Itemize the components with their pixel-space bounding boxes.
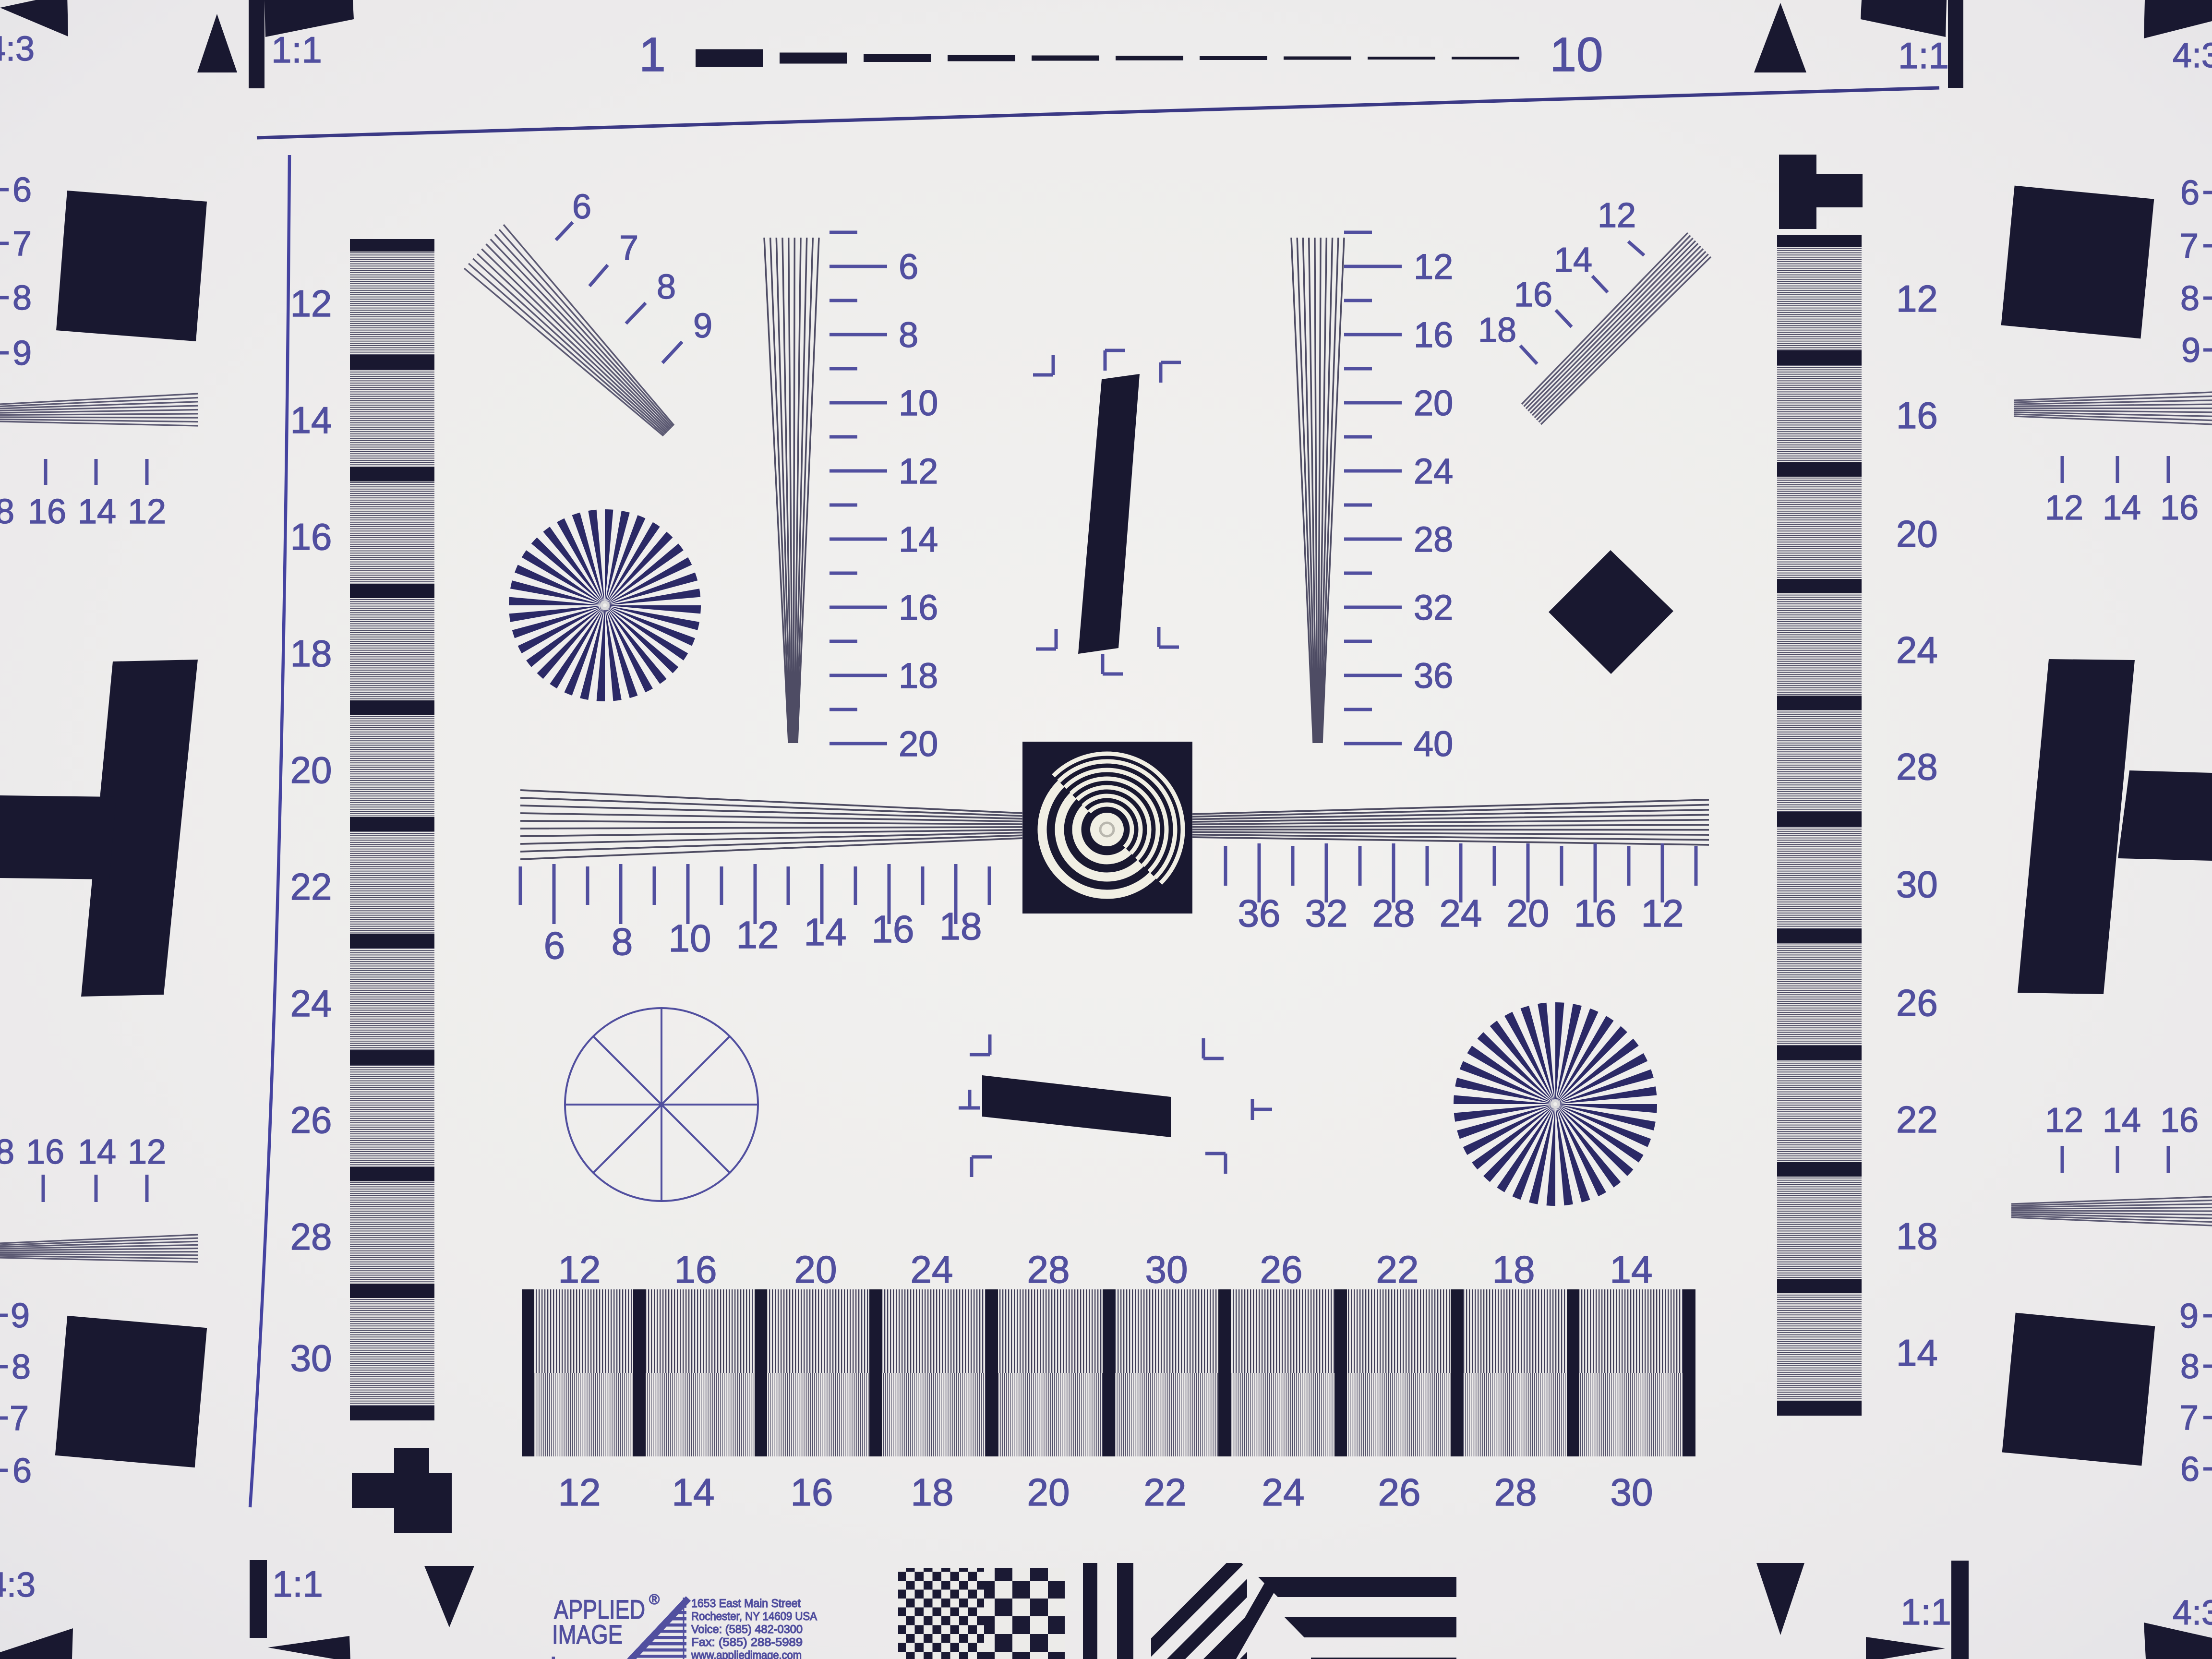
svg-text:12: 12 [290,282,332,325]
svg-text:22: 22 [1376,1248,1419,1291]
svg-text:1:1: 1:1 [271,30,322,71]
svg-text:12: 12 [1598,196,1636,235]
svg-text:14: 14 [78,1133,116,1171]
svg-text:8: 8 [612,920,633,963]
svg-text:10: 10 [669,917,711,960]
svg-text:7: 7 [619,229,638,267]
svg-text:®: ® [649,1592,660,1608]
svg-text:18: 18 [1478,311,1516,349]
svg-text:4:3: 4:3 [2173,36,2212,75]
svg-text:Inc: Inc [550,1651,586,1659]
svg-text:24: 24 [911,1248,953,1291]
svg-text:18: 18 [899,656,938,696]
svg-text:6: 6 [2180,174,2200,212]
svg-text:7: 7 [2179,1399,2199,1437]
svg-text:24: 24 [1440,892,1482,935]
svg-text:30: 30 [1896,863,1938,905]
svg-text:12: 12 [558,1248,601,1291]
svg-text:Voice: (585) 482-0300: Voice: (585) 482-0300 [691,1623,803,1636]
svg-text:8: 8 [899,315,918,355]
svg-text:36: 36 [1238,892,1281,935]
svg-text:www.appliedimage.com: www.appliedimage.com [691,1649,802,1659]
svg-text:40: 40 [1414,724,1453,764]
svg-text:26: 26 [1896,982,1938,1024]
svg-text:28: 28 [290,1215,332,1258]
svg-text:26: 26 [1378,1471,1421,1514]
svg-text:28: 28 [1494,1471,1537,1514]
svg-text:28: 28 [1027,1248,1070,1291]
svg-text:8: 8 [2180,279,2200,318]
svg-text:6: 6 [572,188,591,226]
svg-text:18: 18 [290,632,332,674]
svg-text:9: 9 [12,334,32,373]
svg-text:1:1: 1:1 [1898,36,1949,76]
svg-text:12: 12 [899,451,938,491]
svg-text:20: 20 [1414,383,1453,423]
svg-text:12: 12 [2045,1101,2083,1140]
svg-text:14: 14 [2103,489,2141,527]
svg-text:1: 1 [639,28,666,82]
svg-text:9: 9 [2181,331,2200,370]
svg-text:14: 14 [1610,1248,1653,1291]
svg-text:32: 32 [1414,588,1453,627]
svg-text:7: 7 [2179,227,2199,265]
svg-text:12: 12 [1641,892,1684,935]
svg-text:18: 18 [911,1471,954,1514]
svg-text:28: 28 [1414,519,1453,559]
svg-text:30: 30 [1145,1248,1188,1291]
svg-text:16: 16 [1896,394,1938,436]
svg-text:6: 6 [12,1452,32,1490]
svg-text:6: 6 [544,924,565,967]
svg-text:1653 East Main Street: 1653 East Main Street [691,1597,801,1610]
svg-text:22: 22 [1896,1098,1938,1141]
svg-text:28: 28 [1896,745,1938,788]
svg-text:16: 16 [899,588,938,627]
svg-text:16: 16 [2160,489,2199,527]
svg-text:9: 9 [11,1297,30,1335]
svg-text:20: 20 [290,749,332,791]
svg-text:20: 20 [1027,1471,1070,1514]
svg-text:12: 12 [558,1471,601,1514]
svg-text:30: 30 [290,1337,332,1379]
svg-text:16: 16 [290,516,332,558]
svg-text:24: 24 [290,982,332,1024]
svg-text:12: 12 [128,493,166,531]
svg-text:14: 14 [899,519,938,559]
svg-text:10: 10 [899,383,938,423]
svg-text:32: 32 [1305,892,1348,935]
svg-text:12: 12 [2045,489,2083,527]
svg-text:20: 20 [899,724,938,764]
svg-text:12: 12 [1414,247,1453,287]
svg-text:16: 16 [2160,1101,2199,1140]
svg-text:14: 14 [1896,1332,1938,1374]
svg-text:28: 28 [1372,892,1415,935]
svg-text:16: 16 [791,1471,833,1514]
svg-text:8: 8 [12,1348,31,1386]
svg-text:12: 12 [736,914,779,956]
svg-text:24: 24 [1414,451,1453,491]
svg-text:9: 9 [2179,1297,2199,1335]
svg-text:4:3: 4:3 [2173,1594,2212,1632]
svg-text:8: 8 [657,268,676,306]
svg-text:22: 22 [1144,1471,1187,1514]
svg-text:16: 16 [28,493,66,531]
svg-text:16: 16 [26,1133,64,1171]
svg-text:14: 14 [804,911,847,953]
svg-text:6: 6 [2180,1450,2200,1489]
svg-text:8: 8 [2180,1347,2200,1386]
svg-text:1:1: 1:1 [1900,1592,1951,1633]
svg-text:24: 24 [1896,629,1938,671]
svg-text:14: 14 [290,399,332,441]
svg-text:16: 16 [1574,892,1617,935]
svg-text:20: 20 [794,1248,837,1291]
svg-text:20: 20 [1507,892,1550,935]
svg-text:14: 14 [1554,241,1592,279]
svg-text:9: 9 [693,307,712,345]
svg-text:36: 36 [1414,656,1453,696]
svg-text:18: 18 [1896,1215,1938,1257]
svg-text:4:3: 4:3 [0,1566,36,1604]
svg-text:16: 16 [674,1248,717,1291]
svg-text:14: 14 [78,493,116,531]
svg-text:14: 14 [672,1471,715,1514]
svg-text:26: 26 [290,1099,332,1141]
svg-text:IMAGE: IMAGE [552,1619,623,1649]
svg-text:26: 26 [1260,1248,1303,1291]
svg-text:8: 8 [0,493,14,531]
svg-text:24: 24 [1262,1471,1305,1514]
svg-text:22: 22 [290,866,332,908]
svg-text:18: 18 [939,905,982,948]
svg-text:12: 12 [1896,277,1938,320]
svg-text:7: 7 [10,1399,29,1438]
svg-text:Rochester, NY 14609 USA: Rochester, NY 14609 USA [691,1610,817,1623]
svg-text:6: 6 [12,171,32,209]
svg-text:30: 30 [1611,1471,1653,1514]
svg-text:20: 20 [1896,513,1938,555]
svg-text:7: 7 [12,225,32,263]
svg-text:8: 8 [12,279,32,317]
svg-text:1:1: 1:1 [272,1564,323,1605]
svg-text:Fax: (585) 288-5989: Fax: (585) 288-5989 [691,1636,803,1649]
svg-text:14: 14 [2103,1101,2141,1140]
svg-text:6: 6 [899,247,918,287]
svg-text:10: 10 [1550,28,1603,82]
svg-text:12: 12 [128,1133,166,1171]
svg-text:8: 8 [0,1133,14,1171]
svg-text:4:3: 4:3 [0,30,35,68]
svg-text:18: 18 [1492,1248,1535,1291]
svg-text:16: 16 [1414,315,1453,355]
svg-text:16: 16 [1514,276,1552,314]
svg-text:16: 16 [872,908,914,950]
